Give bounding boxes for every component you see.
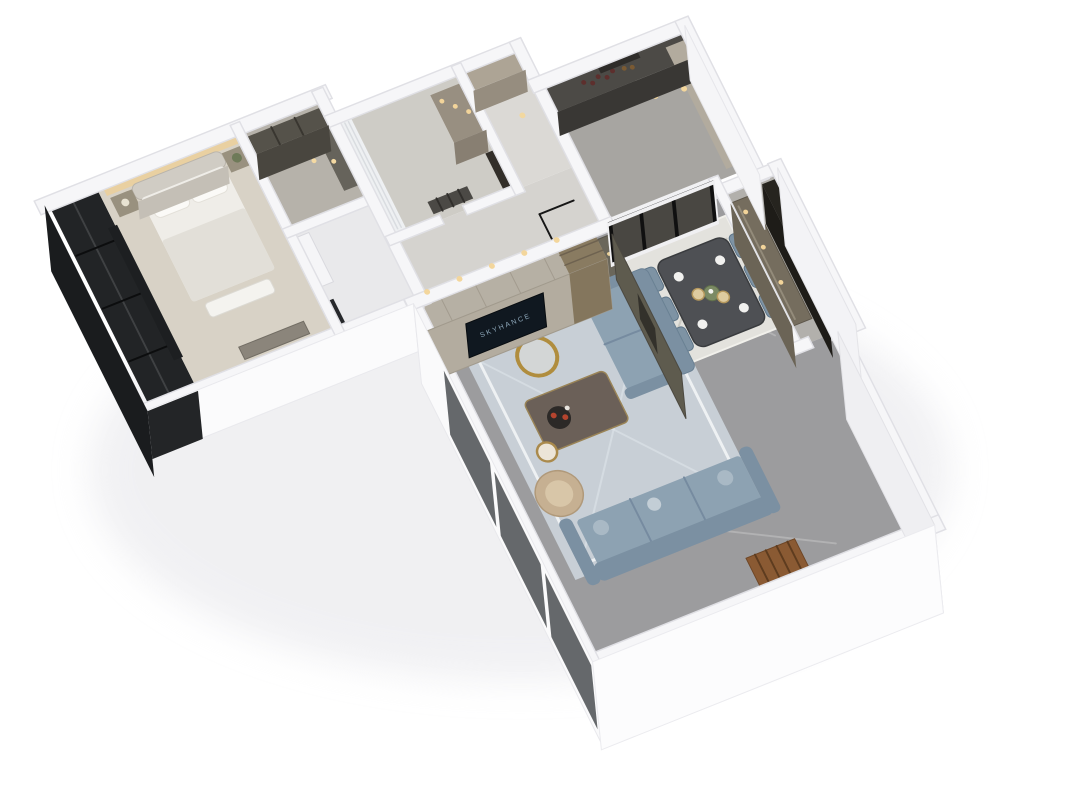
- apartment-render: SKYHANCE: [0, 0, 1080, 809]
- scene-root: SKYHANCE: [45, 25, 950, 750]
- floorplan-svg: SKYHANCE: [0, 0, 1080, 809]
- wall-study-south: [798, 344, 805, 347]
